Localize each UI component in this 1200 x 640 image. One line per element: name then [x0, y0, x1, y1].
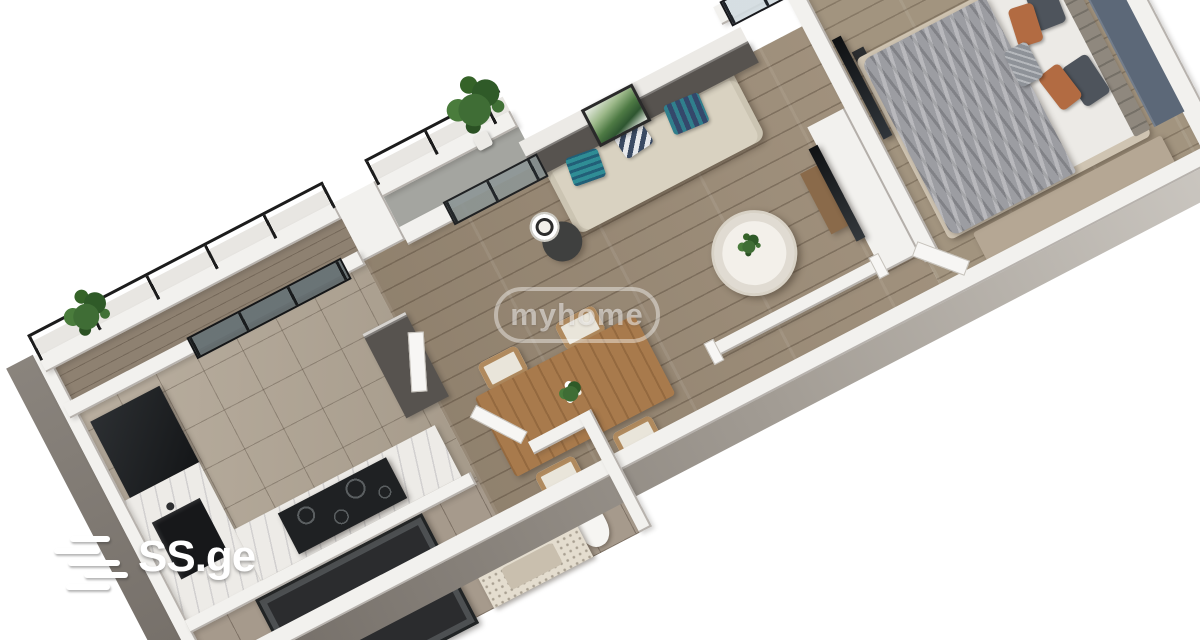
speed-line [66, 584, 110, 590]
speed-line [84, 572, 128, 578]
speed-line [70, 536, 110, 542]
speed-line [54, 548, 100, 554]
ssge-logo-text: SS.ge [138, 532, 255, 582]
floor-plan-render: myhome SS.ge [0, 0, 1200, 640]
speed-line [68, 560, 120, 566]
ssge-logo: SS.ge [48, 530, 268, 600]
myhome-watermark: myhome [494, 287, 660, 343]
